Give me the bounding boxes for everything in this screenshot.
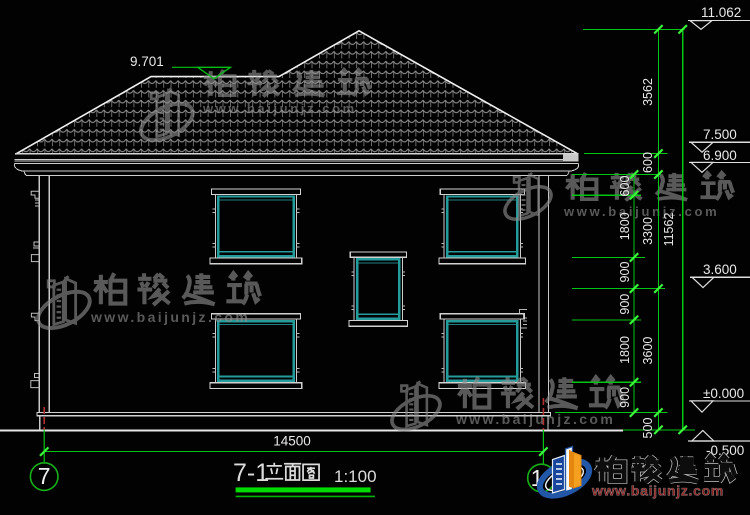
svg-text:3.600: 3.600	[703, 262, 737, 277]
svg-text:7: 7	[38, 463, 51, 489]
svg-text:1800: 1800	[618, 336, 632, 364]
svg-text:600: 600	[641, 152, 655, 173]
svg-text:11.062: 11.062	[701, 5, 741, 20]
svg-text:www.baijunjz.com: www.baijunjz.com	[90, 309, 250, 325]
svg-text:14500: 14500	[273, 434, 311, 449]
svg-text:3300: 3300	[641, 217, 655, 245]
svg-text:6.900: 6.900	[703, 148, 737, 163]
svg-text:7-1: 7-1	[233, 459, 269, 487]
svg-text:900: 900	[618, 387, 632, 408]
svg-text:www.baijunjz.com: www.baijunjz.com	[591, 483, 724, 499]
svg-text:600: 600	[618, 176, 632, 197]
svg-text:11562: 11562	[662, 213, 676, 247]
svg-text:1800: 1800	[618, 212, 632, 240]
svg-text:3562: 3562	[641, 78, 655, 106]
svg-text:900: 900	[618, 262, 632, 283]
svg-text:±0.000: ±0.000	[703, 386, 744, 401]
svg-text:www.baijunjz.com: www.baijunjz.com	[202, 101, 357, 116]
svg-text:3600: 3600	[641, 337, 655, 365]
svg-text:500: 500	[641, 418, 655, 439]
svg-text:www.baijunjz.com: www.baijunjz.com	[455, 411, 615, 427]
svg-text:1:100: 1:100	[334, 467, 377, 486]
svg-text:900: 900	[618, 294, 632, 315]
svg-text:www.baijunjz.com: www.baijunjz.com	[563, 204, 719, 219]
svg-text:9.701: 9.701	[130, 54, 164, 69]
svg-text:7.500: 7.500	[703, 127, 737, 142]
